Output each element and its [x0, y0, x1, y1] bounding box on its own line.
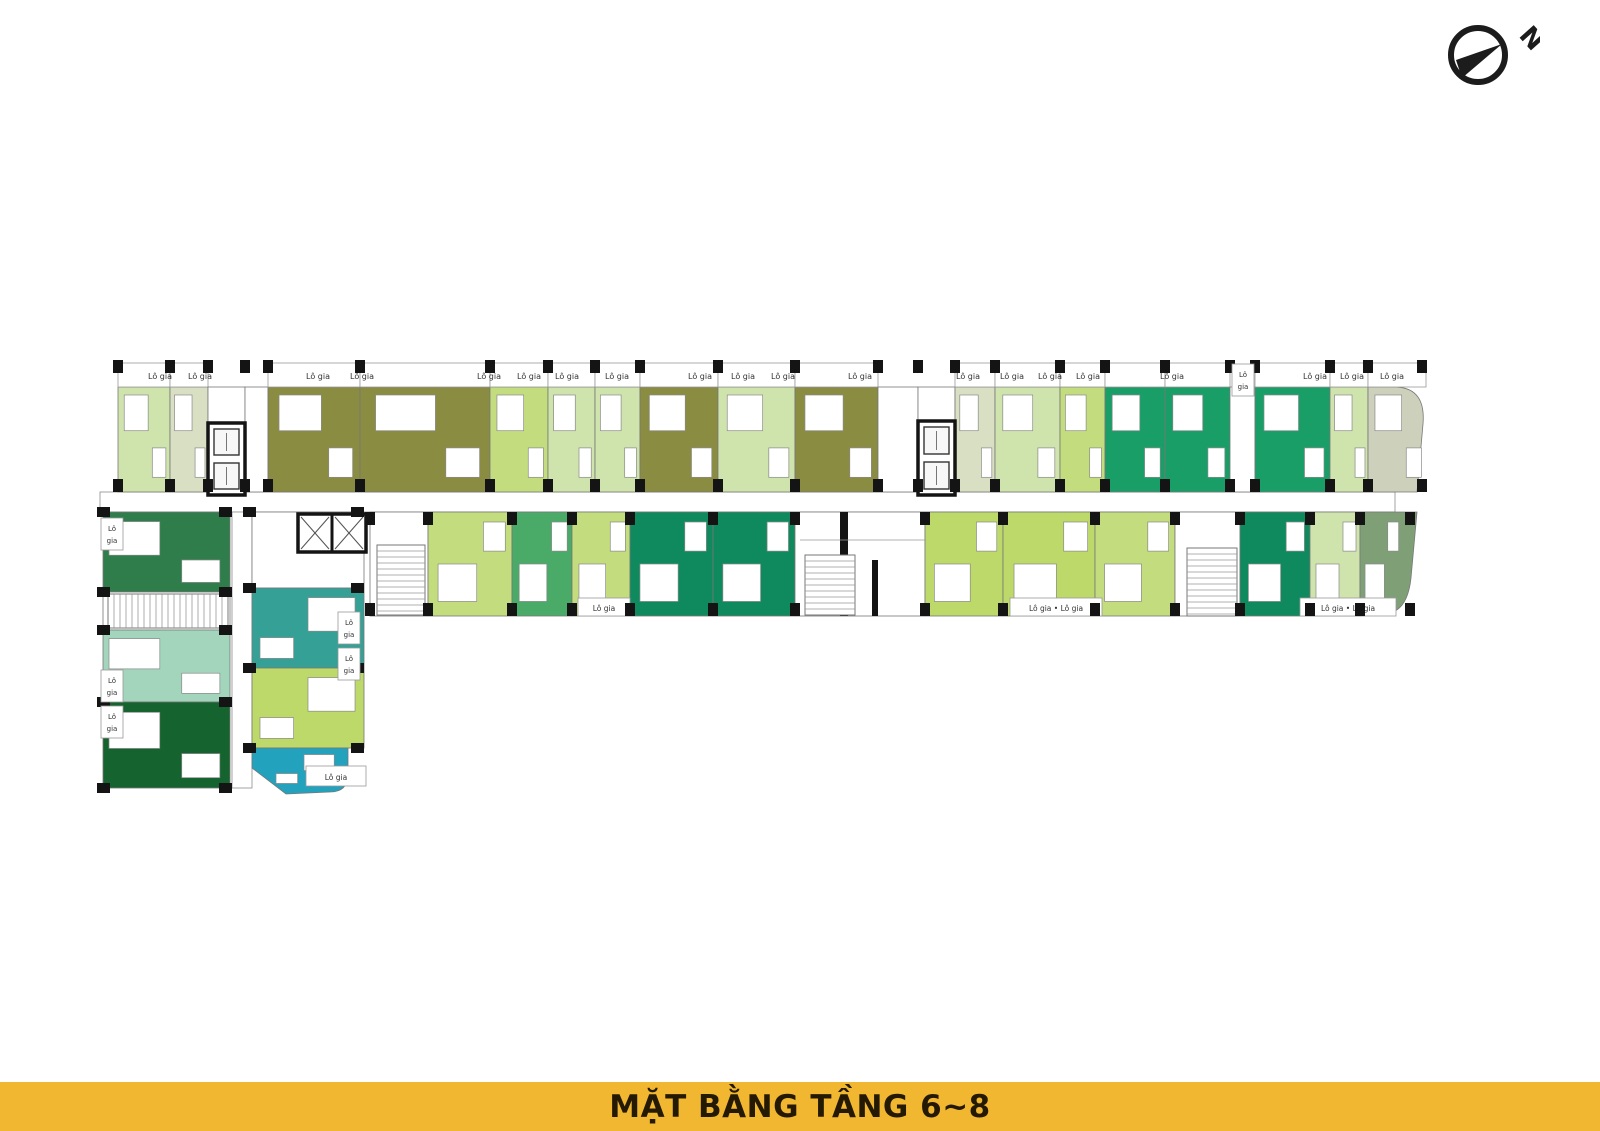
column-mark [567, 603, 577, 616]
balcony-label: gia [107, 689, 118, 697]
column-mark [1055, 479, 1065, 492]
column-mark [1100, 479, 1110, 492]
furniture [579, 564, 606, 601]
column-mark [263, 479, 273, 492]
column-mark [873, 479, 883, 492]
furniture [1365, 564, 1384, 601]
balcony-label: Lô gia [1000, 371, 1024, 381]
column-mark [219, 697, 232, 707]
balcony-label: Lô gia [593, 604, 615, 613]
column-mark [1170, 512, 1180, 525]
furniture [483, 522, 505, 551]
column-mark [708, 512, 718, 525]
column-mark [543, 479, 553, 492]
apartment-unit [878, 387, 918, 492]
balcony-label: Lô [108, 713, 116, 721]
stairwell [1187, 548, 1237, 616]
column-mark [1250, 479, 1260, 492]
balcony-label: Lô [345, 655, 353, 663]
column-mark [567, 512, 577, 525]
column-mark [543, 360, 553, 373]
furniture [260, 718, 294, 739]
balcony-label: Lô [345, 619, 353, 627]
balcony-label: Lô gia [688, 371, 712, 381]
column-mark [97, 507, 110, 517]
furniture [769, 448, 789, 477]
furniture [727, 395, 762, 431]
furniture [649, 395, 685, 431]
column-mark [355, 360, 365, 373]
balcony-label: gia [107, 725, 118, 733]
column-mark [1363, 360, 1373, 373]
column-mark [113, 360, 123, 373]
column-mark [97, 625, 110, 635]
furniture [579, 448, 591, 477]
balcony-label: Lô gia [306, 371, 330, 381]
balcony-label: Lô [108, 677, 116, 685]
balcony-label: Lô gia [1340, 371, 1364, 381]
column-mark [507, 512, 517, 525]
column-mark [165, 360, 175, 373]
column-mark [635, 360, 645, 373]
column-mark [950, 360, 960, 373]
column-mark [708, 603, 718, 616]
furniture [1248, 564, 1280, 601]
column-mark [355, 479, 365, 492]
balcony-strip [1232, 364, 1254, 396]
furniture [1343, 522, 1356, 551]
column-mark [97, 587, 110, 597]
furniture [1208, 448, 1225, 477]
furniture [497, 395, 524, 431]
furniture [1145, 448, 1161, 477]
column-mark [351, 743, 364, 753]
column-mark [590, 360, 600, 373]
column-mark [203, 360, 213, 373]
furniture [981, 448, 991, 477]
balcony-label: Lô gia • Lô gia [1029, 604, 1083, 613]
column-mark [1100, 360, 1110, 373]
column-mark [243, 583, 256, 593]
furniture [640, 564, 678, 601]
title-bar: MẶT BẰNG TẦNG 6~8 [0, 1082, 1600, 1131]
furniture [1264, 395, 1299, 431]
furniture [1316, 564, 1339, 601]
furniture [1090, 448, 1102, 477]
furniture [1286, 522, 1304, 551]
furniture [182, 560, 220, 582]
column-mark [1235, 603, 1245, 616]
balcony-label: Lô gia [1303, 371, 1327, 381]
apartment-unit [1230, 387, 1255, 492]
furniture [1064, 522, 1088, 551]
column-mark [1325, 479, 1335, 492]
balcony-label: Lô gia [1076, 371, 1100, 381]
column-mark [351, 507, 364, 517]
column-mark [165, 479, 175, 492]
furniture [625, 448, 637, 477]
furniture [723, 564, 761, 601]
furniture [552, 522, 568, 551]
column-mark [365, 603, 375, 616]
column-mark [485, 479, 495, 492]
balcony-label: Lô gia [325, 773, 347, 782]
floor-plan: Lô giaLô giaLô giaLô giaLô giaLô giaLô g… [0, 0, 1600, 1131]
furniture [438, 564, 477, 601]
column-mark [113, 479, 123, 492]
column-mark [1305, 512, 1315, 525]
furniture [600, 395, 621, 431]
column-mark [1160, 360, 1170, 373]
column-mark [423, 603, 433, 616]
furniture [1148, 522, 1169, 551]
furniture [519, 564, 547, 601]
furniture [308, 678, 355, 712]
column-mark [1090, 603, 1100, 616]
column-mark [998, 512, 1008, 525]
column-mark [635, 479, 645, 492]
column-mark [1355, 603, 1365, 616]
balcony-label: Lô gia [517, 371, 541, 381]
furniture [195, 448, 205, 477]
balcony-label: Lô gia [555, 371, 579, 381]
column-mark [625, 603, 635, 616]
column-mark [1417, 479, 1427, 492]
furniture [1355, 448, 1365, 477]
balcony-strip [101, 670, 123, 702]
column-mark [590, 479, 600, 492]
furniture [767, 522, 788, 551]
floor-title: MẶT BẰNG TẦNG 6~8 [609, 1089, 991, 1125]
column-mark [365, 512, 375, 525]
column-mark [913, 479, 923, 492]
furniture [109, 639, 160, 669]
column-mark [263, 360, 273, 373]
column-mark [1170, 603, 1180, 616]
furniture [1406, 448, 1421, 477]
furniture [1335, 395, 1352, 431]
column-mark [873, 360, 883, 373]
furniture [260, 638, 294, 659]
column-mark [713, 479, 723, 492]
column-mark [790, 603, 800, 616]
column-mark [243, 507, 256, 517]
balcony-label: gia [344, 631, 355, 639]
furniture [152, 448, 166, 477]
furniture [1065, 395, 1086, 431]
stairwell [377, 545, 425, 615]
column-mark [913, 360, 923, 373]
balcony-label: gia [107, 537, 118, 545]
balcony-strip [338, 612, 360, 644]
furniture [528, 448, 543, 477]
furniture [934, 564, 970, 601]
furniture [1112, 395, 1140, 431]
furniture [1105, 564, 1142, 601]
furniture [805, 395, 843, 431]
column-mark [240, 479, 250, 492]
column-mark [790, 479, 800, 492]
balcony-label: gia [344, 667, 355, 675]
balcony-strip [101, 518, 123, 550]
furniture [691, 448, 711, 477]
column-mark [625, 512, 635, 525]
column-mark [1090, 512, 1100, 525]
furniture [1375, 395, 1402, 431]
column-mark [1225, 479, 1235, 492]
balcony-label: Lô [1239, 371, 1247, 379]
furniture [960, 395, 978, 431]
furniture [685, 522, 707, 551]
column-mark [1405, 603, 1415, 616]
column-mark [219, 507, 232, 517]
column-mark [485, 360, 495, 373]
column-mark [243, 663, 256, 673]
furniture [182, 754, 220, 778]
floor-plan-page: N Lô giaLô giaLô giaLô giaLô giaLô giaLô… [0, 0, 1600, 1131]
column-mark [1355, 512, 1365, 525]
column-mark [240, 360, 250, 373]
column-mark [1363, 479, 1373, 492]
furniture [1014, 564, 1056, 601]
balcony-label: Lô gia [1380, 371, 1404, 381]
furniture [124, 395, 148, 431]
column-mark [97, 783, 110, 793]
balcony-label: gia [1238, 383, 1249, 391]
furniture [175, 395, 192, 431]
column-mark [1235, 512, 1245, 525]
balcony-label: Lô [108, 525, 116, 533]
column-mark [950, 479, 960, 492]
apartment-unit [245, 387, 268, 492]
column-mark [219, 625, 232, 635]
column-mark [1405, 512, 1415, 525]
column-mark [790, 360, 800, 373]
furniture [329, 448, 353, 477]
column-mark [423, 512, 433, 525]
column-mark [990, 360, 1000, 373]
column-mark [203, 479, 213, 492]
furniture [1038, 448, 1055, 477]
balcony-label: Lô gia [848, 371, 872, 381]
balcony-label: Lô gia [605, 371, 629, 381]
balcony-strip [338, 648, 360, 680]
column-mark [990, 479, 1000, 492]
furniture [1003, 395, 1033, 431]
column-mark [713, 360, 723, 373]
furniture [976, 522, 996, 551]
furniture [376, 395, 436, 431]
balcony-label: Lô gia • Lô gia [1321, 604, 1375, 613]
column-mark [507, 603, 517, 616]
furniture [554, 395, 576, 431]
column-mark [920, 512, 930, 525]
balcony-strip [360, 363, 490, 387]
furniture [446, 448, 480, 477]
column-mark [1160, 479, 1170, 492]
column-mark [1055, 360, 1065, 373]
column-mark [219, 783, 232, 793]
column-mark [790, 512, 800, 525]
furniture [850, 448, 872, 477]
furniture [610, 522, 625, 551]
column-mark [1305, 603, 1315, 616]
main-corridor [100, 492, 1395, 512]
balcony-strip [101, 706, 123, 738]
furniture [182, 673, 220, 693]
column-mark [219, 587, 232, 597]
balcony-label: Lô gia [731, 371, 755, 381]
column-mark [998, 603, 1008, 616]
column-mark [920, 603, 930, 616]
furniture [1173, 395, 1203, 431]
wall [872, 560, 878, 616]
furniture [276, 774, 298, 784]
column-mark [1417, 360, 1427, 373]
column-mark [351, 583, 364, 593]
furniture [1388, 522, 1399, 551]
balcony-strip [1105, 363, 1165, 387]
column-mark [243, 743, 256, 753]
furniture [279, 395, 321, 431]
column-mark [1325, 360, 1335, 373]
furniture [1305, 448, 1325, 477]
